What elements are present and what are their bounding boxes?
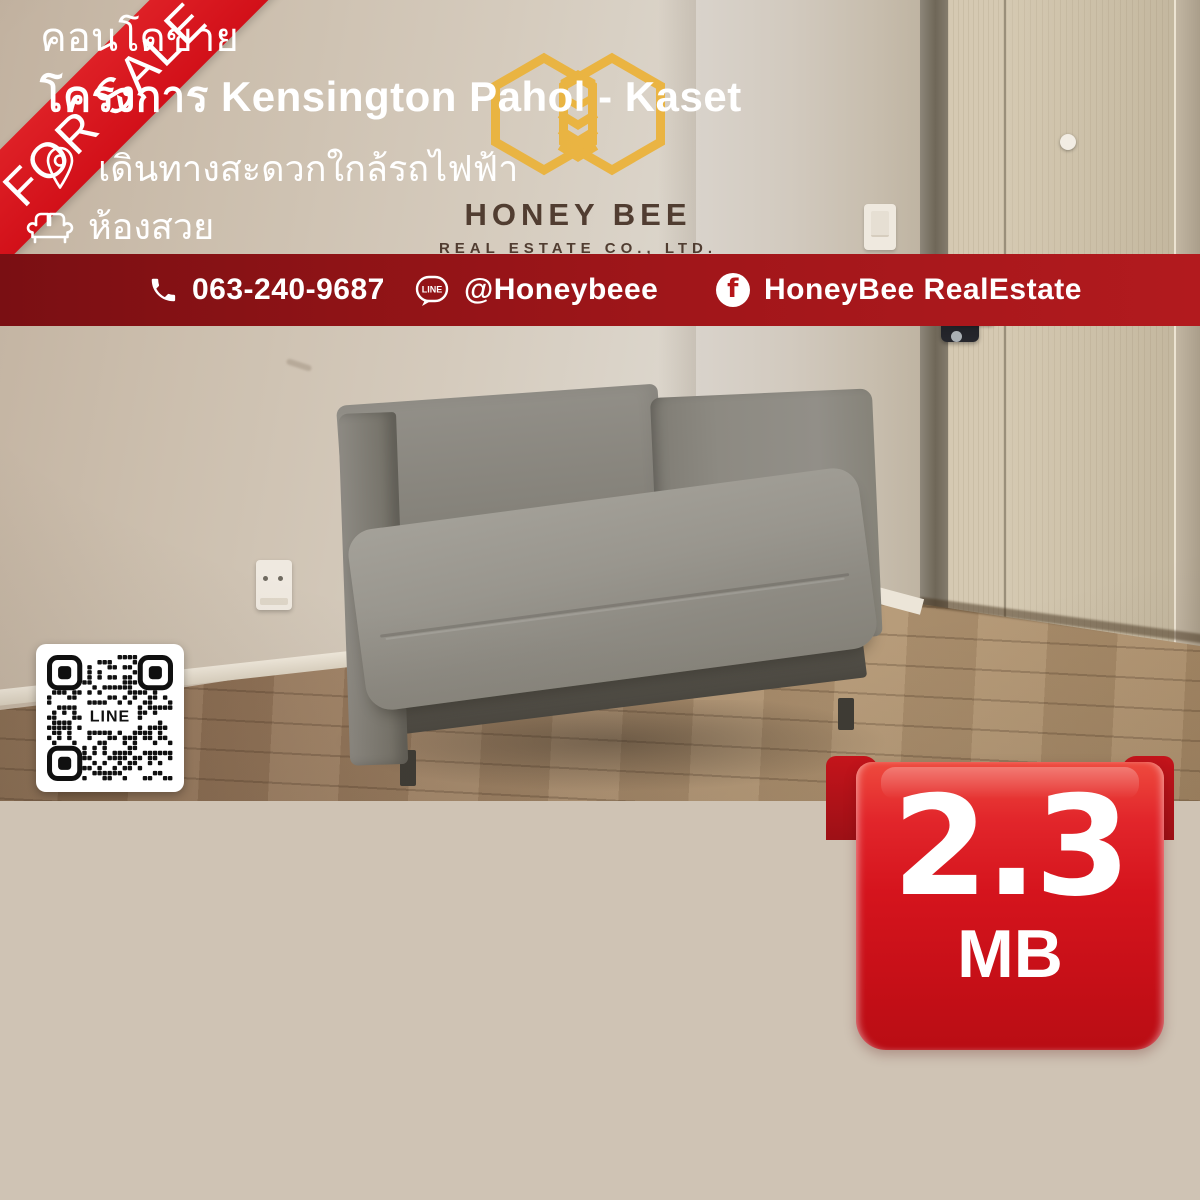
sofa-leg <box>838 698 854 730</box>
door-peephole <box>1060 134 1076 150</box>
cushion-seam-highlight <box>385 578 845 640</box>
feature-text: เดินทางสะดวกใกล้รถไฟฟ้า <box>98 140 518 197</box>
property-flyer: FOR SALE HONEY BEE REAL ESTATE CO., LT <box>0 0 1200 1200</box>
facebook-contact[interactable]: f HoneyBee RealEstate <box>716 254 1082 326</box>
badge-gloss <box>881 767 1140 799</box>
contact-bar: 063-240-9687 LINE @Honeybeee f HoneyBee … <box>0 254 1200 326</box>
phone-icon <box>148 275 178 305</box>
feature-text: ห้องสวย <box>88 198 214 255</box>
location-pin-icon <box>34 146 86 192</box>
line-qr-card[interactable]: LINE <box>36 644 184 792</box>
cushion-seam <box>380 572 850 637</box>
power-outlet <box>256 560 292 610</box>
price-badge: 2.3 MB <box>856 762 1164 1050</box>
light-switch <box>864 204 896 250</box>
price-unit: MB <box>957 920 1063 988</box>
sofa-icon <box>24 209 76 245</box>
line-id: @Honeybeee <box>464 273 658 307</box>
facebook-icon: f <box>716 273 750 307</box>
listing-type: คอนโดขาย <box>40 14 239 62</box>
qr-line-label: LINE <box>84 708 136 728</box>
switch-rocker <box>871 211 889 237</box>
feature-room: ห้องสวย <box>24 198 214 255</box>
line-contact[interactable]: LINE @Honeybeee <box>414 254 658 326</box>
svg-text:LINE: LINE <box>422 285 443 295</box>
outlet-plate <box>260 598 288 605</box>
line-icon: LINE <box>414 272 450 308</box>
brand-name: HONEY BEE <box>408 197 748 233</box>
outlet-socket <box>263 576 268 581</box>
lock-knob <box>951 331 962 342</box>
outlet-socket <box>278 576 283 581</box>
facebook-name: HoneyBee RealEstate <box>764 273 1082 307</box>
phone-number: 063-240-9687 <box>192 273 385 307</box>
feature-location: เดินทางสะดวกใกล้รถไฟฟ้า <box>34 140 518 197</box>
phone-contact[interactable]: 063-240-9687 <box>148 254 385 326</box>
project-name: โครงการ Kensington Pahol - Kaset <box>40 72 742 122</box>
